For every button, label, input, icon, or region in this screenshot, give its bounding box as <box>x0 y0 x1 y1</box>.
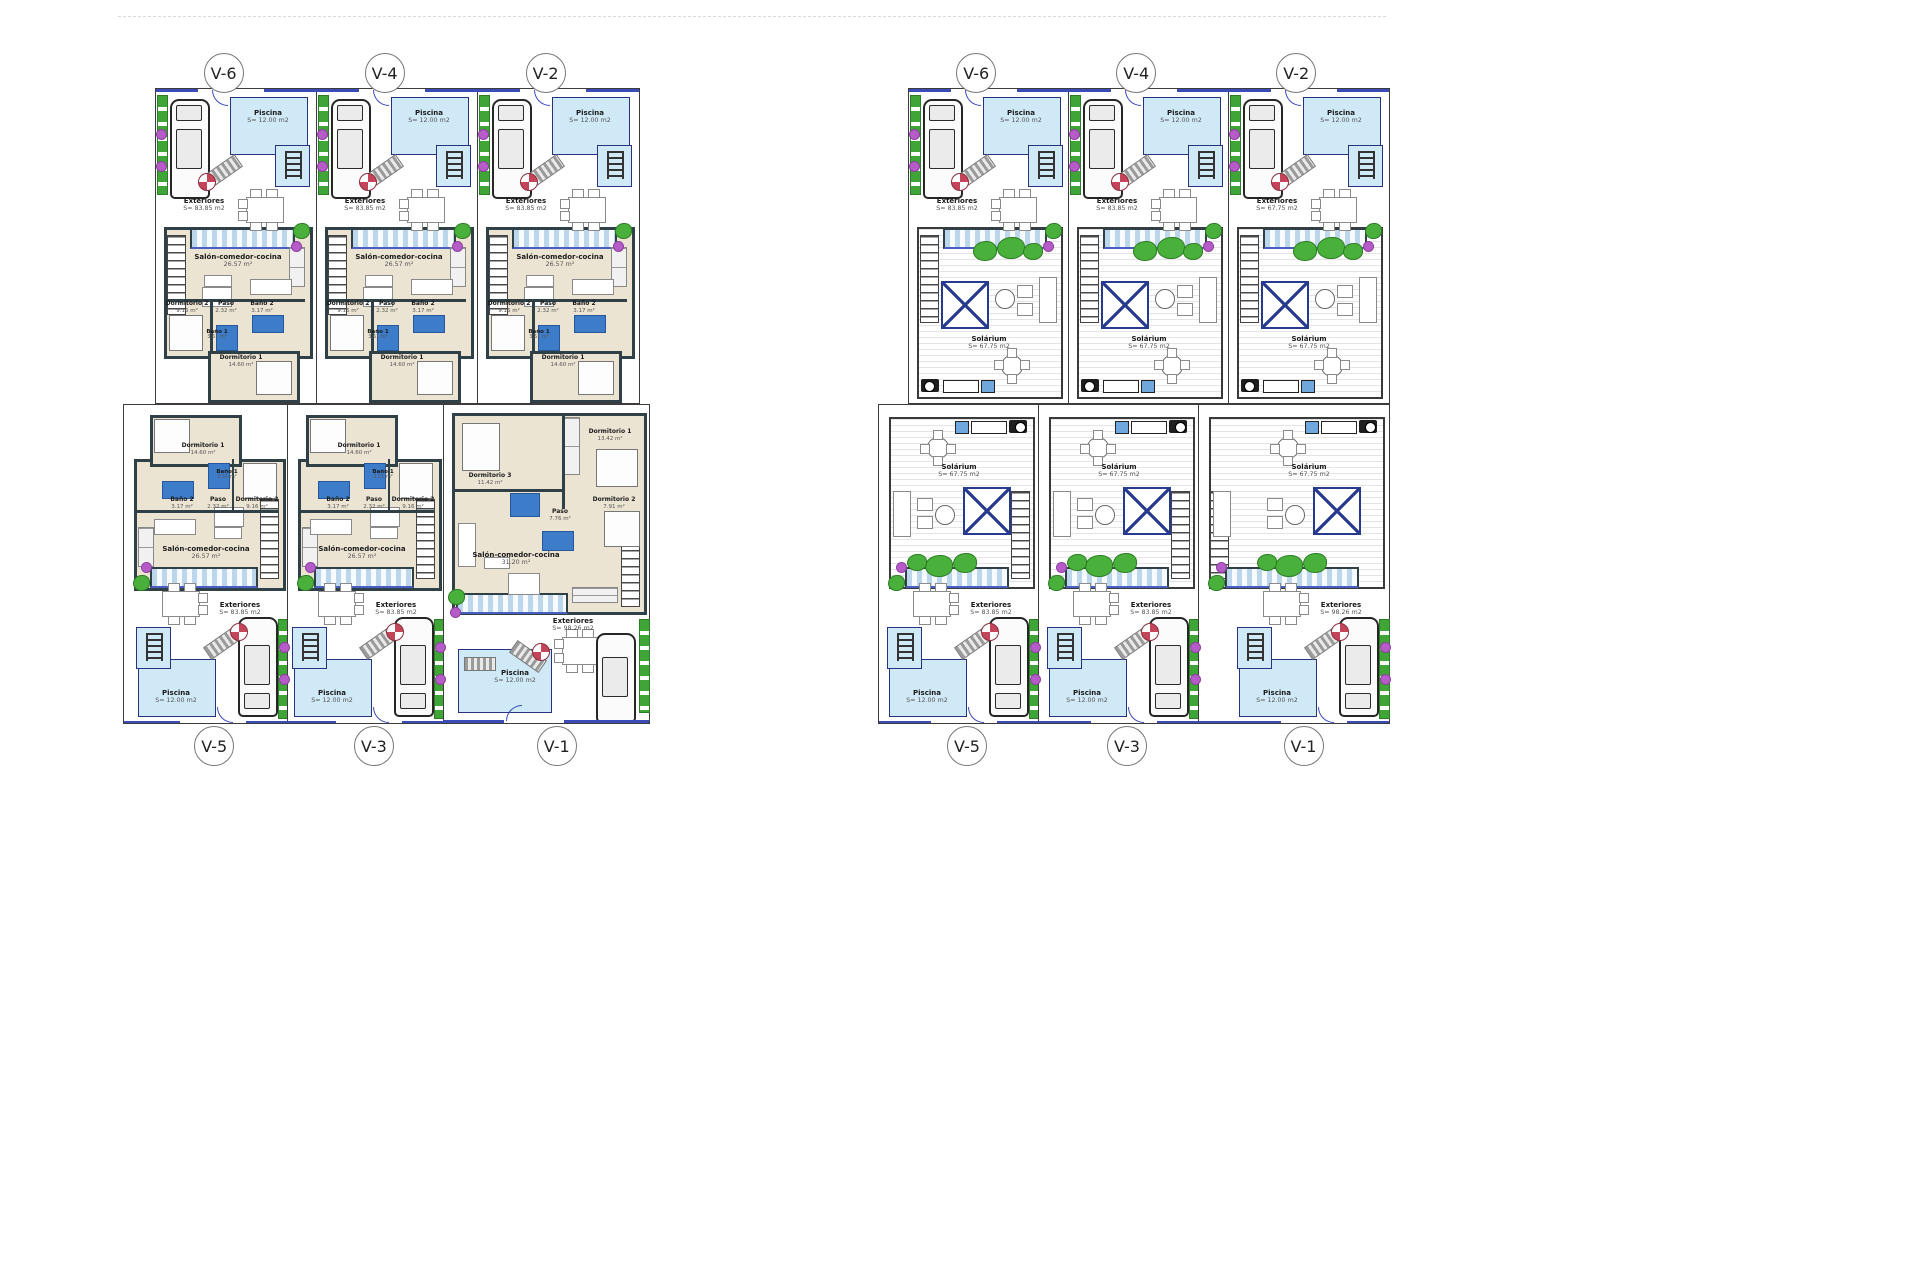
pool-label: PiscinaS= 12.00 m2 <box>1243 689 1311 704</box>
car-window <box>400 693 426 709</box>
bush <box>973 241 997 261</box>
flower <box>279 642 290 653</box>
chair <box>1177 285 1193 298</box>
flower <box>478 129 489 140</box>
car-window <box>1345 645 1371 685</box>
sofa <box>250 279 292 295</box>
entry-wall <box>1177 89 1229 92</box>
chair <box>588 189 600 198</box>
plant-strip <box>318 95 329 195</box>
dorm1-label: Dormitorio 114.60 m² <box>328 443 390 456</box>
entry-wall <box>1347 721 1389 724</box>
pool-label-name: Piscina <box>142 689 210 697</box>
bano2-label: Baño 23.17 m² <box>162 497 202 510</box>
entry-wall <box>288 721 336 724</box>
pool-label: PiscinaS= 12.00 m2 <box>1053 689 1121 704</box>
pool-label-name: Piscina <box>893 689 961 697</box>
chair <box>1179 189 1191 198</box>
dorm2-label-name: Dormitorio 2 <box>486 301 532 308</box>
dorm2-label: Dormitorio 29.16 m² <box>164 301 210 314</box>
exteriores-label-area: S= 98.26 m2 <box>1309 609 1373 616</box>
dorm2-label: Dormitorio 27.91 m² <box>586 497 642 510</box>
dorm2-label-area: 7.91 m² <box>586 504 642 510</box>
bush <box>1208 575 1225 591</box>
exteriores-label: ExterioresS= 83.85 m2 <box>1119 601 1183 616</box>
dorm3-label-area: 11.42 m² <box>458 480 522 486</box>
paso-label-name: Paso <box>534 301 562 308</box>
roof-vent-circle <box>1175 422 1186 433</box>
dorm1-label-area: 14.60 m² <box>532 362 594 368</box>
plant-strip <box>1070 95 1081 195</box>
exteriores-label-name: Exteriores <box>538 617 608 625</box>
exteriores-label: ExterioresS= 83.85 m2 <box>925 197 989 212</box>
bano1-label: Baño 13.51 m² <box>214 469 240 481</box>
chair <box>1311 199 1321 209</box>
dorm2-label: Dormitorio 29.16 m² <box>390 497 436 510</box>
parasol <box>359 173 377 191</box>
car-window <box>337 129 363 169</box>
chair <box>917 498 933 511</box>
flower <box>909 129 920 140</box>
bush <box>1257 554 1277 571</box>
coffee-table <box>365 275 393 287</box>
pool-ladder <box>897 633 914 661</box>
chair <box>1340 360 1350 370</box>
bush <box>997 237 1025 259</box>
flower <box>613 241 624 252</box>
entry-wall <box>1199 721 1281 724</box>
chair <box>184 583 196 592</box>
parasol <box>386 623 404 641</box>
pool-ladder <box>302 633 319 661</box>
roof-vent-circle <box>1084 381 1095 392</box>
car-window <box>400 645 426 685</box>
entry-wall <box>444 720 504 723</box>
car-window <box>1249 105 1275 121</box>
exteriores-label-area: S= 83.85 m2 <box>1085 205 1149 212</box>
dorm2-label: Dormitorio 29.16 m² <box>325 301 371 314</box>
sofa <box>411 279 453 295</box>
paso-label: Paso2.32 m² <box>212 301 240 314</box>
exteriores-label-area: S= 67.75 m2 <box>1245 205 1309 212</box>
paso-label: Paso2.32 m² <box>360 497 388 510</box>
pool-label-area: S= 12.00 m2 <box>484 677 546 684</box>
dining-table <box>999 197 1037 223</box>
chair <box>935 583 947 592</box>
car-window <box>244 693 270 709</box>
closet <box>564 417 580 475</box>
chair <box>340 583 352 592</box>
sheet-top-edge-line <box>118 16 1386 19</box>
car-window <box>498 129 524 169</box>
flower <box>450 607 461 618</box>
solarium-label-name: Solárium <box>1115 335 1183 343</box>
salon-label: Salón-comedor-cocina26.57 m² <box>160 545 252 560</box>
dorm2-label-area: 9.16 m² <box>486 308 532 314</box>
entry-door-arc <box>968 707 984 723</box>
sofa <box>572 279 614 295</box>
exteriores-label-name: Exteriores <box>333 197 397 205</box>
salon-label-area: 31.20 m² <box>470 559 562 566</box>
chair <box>1077 498 1093 511</box>
bano2-label: Baño 23.17 m² <box>403 301 443 314</box>
chair <box>324 616 336 625</box>
chair <box>1163 189 1175 198</box>
bush <box>907 554 927 571</box>
bed <box>399 463 433 499</box>
paso-label: Paso2.32 m² <box>373 301 401 314</box>
chair <box>919 616 931 625</box>
bathroom <box>542 531 574 551</box>
solarium-label: SoláriumS= 67.75 m2 <box>1275 463 1343 478</box>
bed <box>596 449 638 487</box>
bano2-label-area: 3.17 m² <box>564 308 604 314</box>
dorm2-label-area: 9.16 m² <box>390 504 436 510</box>
chair <box>266 189 278 198</box>
roof-vent-circle <box>1365 422 1376 433</box>
unit-v-3-sheet2: PiscinaS= 12.00 m2ExterioresS= 83.85 m2S… <box>1038 404 1200 724</box>
flower <box>156 161 167 172</box>
pergola <box>1261 281 1309 329</box>
flower <box>452 241 463 252</box>
terrace <box>190 228 295 249</box>
chair <box>1095 583 1107 592</box>
plant-strip <box>157 95 168 195</box>
bush <box>925 555 953 577</box>
unit-label-v-3: V-3 <box>1107 726 1147 766</box>
round-table <box>1285 505 1305 525</box>
bush <box>1045 223 1062 239</box>
pool-label-area: S= 12.00 m2 <box>1053 697 1121 704</box>
dorm2-label-name: Dormitorio 2 <box>325 301 371 308</box>
sofa <box>1359 277 1377 323</box>
roof-vent <box>1141 380 1155 393</box>
chair <box>354 605 364 615</box>
bed <box>462 423 500 471</box>
exteriores-label-name: Exteriores <box>959 601 1023 609</box>
exteriores-label-name: Exteriores <box>925 197 989 205</box>
parasol <box>981 623 999 641</box>
salon-label: Salón-comedor-cocina26.57 m² <box>192 253 284 268</box>
roof-vent-circle <box>924 381 935 392</box>
dining-table <box>246 197 284 223</box>
bano2-label-name: Baño 2 <box>242 301 282 308</box>
salon-label-area: 26.57 m² <box>316 553 408 560</box>
chair <box>949 605 959 615</box>
pool-label-name: Piscina <box>1147 109 1215 117</box>
flower <box>1380 642 1391 653</box>
dining-table <box>1073 591 1111 617</box>
parasol <box>230 623 248 641</box>
paso-label-area: 2.32 m² <box>534 308 562 314</box>
bush <box>1343 243 1363 260</box>
car-window <box>602 657 628 697</box>
bano1-label: Baño 13.51 m² <box>526 329 552 341</box>
chair <box>920 444 930 454</box>
chair <box>560 199 570 209</box>
exteriores-label-name: Exteriores <box>1245 197 1309 205</box>
salon-label-name: Salón-comedor-cocina <box>514 253 606 261</box>
dorm1-label: Dormitorio 113.42 m² <box>580 429 640 442</box>
exteriores-label: ExterioresS= 83.85 m2 <box>333 197 397 212</box>
salon-label-name: Salón-comedor-cocina <box>192 253 284 261</box>
bush <box>1293 241 1317 261</box>
chair <box>554 639 564 649</box>
pool-label: PiscinaS= 12.00 m2 <box>484 669 546 684</box>
dorm1-label-name: Dormitorio 1 <box>328 443 390 450</box>
entry-wall <box>425 89 478 92</box>
flower <box>435 642 446 653</box>
car-window <box>929 105 955 121</box>
chair <box>554 653 564 663</box>
pool-label: PiscinaS= 12.00 m2 <box>556 109 624 124</box>
round-table <box>935 505 955 525</box>
unit-label-v-3: V-3 <box>354 726 394 766</box>
kitchen-cabinets <box>572 587 618 603</box>
exteriores-label-area: S= 83.85 m2 <box>959 609 1023 616</box>
exteriores-label-area: S= 83.85 m2 <box>172 205 236 212</box>
parasol <box>1271 173 1289 191</box>
chair <box>991 199 1001 209</box>
bano2-label-area: 3.17 m² <box>318 504 358 510</box>
pool-label: PiscinaS= 12.00 m2 <box>1147 109 1215 124</box>
flower <box>909 161 920 172</box>
flower <box>156 129 167 140</box>
chair <box>1337 303 1353 316</box>
roof-vent <box>955 421 969 434</box>
chair <box>917 516 933 529</box>
bano2-label: Baño 23.17 m² <box>242 301 282 314</box>
flower <box>1203 241 1214 252</box>
roof-vent-circle <box>1244 381 1255 392</box>
chair <box>1079 616 1091 625</box>
exteriores-label: ExterioresS= 98.26 m2 <box>1309 601 1373 616</box>
exteriores-label-name: Exteriores <box>1309 601 1373 609</box>
bano2-label-name: Baño 2 <box>403 301 443 308</box>
coffee-table <box>214 527 242 539</box>
entry-wall <box>1337 89 1389 92</box>
coffee-table <box>204 275 232 287</box>
flower <box>1363 241 1374 252</box>
chair <box>1077 516 1093 529</box>
exteriores-label: ExterioresS= 83.85 m2 <box>364 601 428 616</box>
chair <box>266 222 278 231</box>
dorm2-label-name: Dormitorio 2 <box>234 497 280 504</box>
bano1-label: Baño 13.51 m² <box>365 329 391 341</box>
bush <box>448 589 465 605</box>
sofa <box>1053 491 1071 537</box>
coffee-table <box>526 275 554 287</box>
car-window <box>1249 129 1275 169</box>
unit-label-v-6: V-6 <box>204 53 244 93</box>
flower <box>1380 674 1391 685</box>
chair <box>1106 444 1116 454</box>
exteriores-label: ExterioresS= 83.85 m2 <box>494 197 558 212</box>
chair <box>1151 199 1161 209</box>
bano2-label-area: 3.17 m² <box>403 308 443 314</box>
salon-label-name: Salón-comedor-cocina <box>353 253 445 261</box>
stairs <box>1240 235 1259 323</box>
pool-label-area: S= 12.00 m2 <box>556 117 624 124</box>
roof-equipment <box>1103 380 1139 393</box>
chair <box>1003 189 1015 198</box>
chair <box>582 664 594 673</box>
unit-label-v-5: V-5 <box>947 726 987 766</box>
dorm3-label: Dormitorio 311.42 m² <box>458 473 522 486</box>
entry-wall <box>264 89 317 92</box>
pool-label-name: Piscina <box>234 109 302 117</box>
round-table <box>1095 505 1115 525</box>
unit-v-6-sheet2: PiscinaS= 12.00 m2ExterioresS= 83.85 m2S… <box>908 88 1070 404</box>
sofa <box>893 491 911 537</box>
entry-wall <box>879 721 931 724</box>
chair <box>427 189 439 198</box>
paso-label-name: Paso <box>212 301 240 308</box>
bano2-label-area: 3.17 m² <box>242 308 282 314</box>
salon-label: Salón-comedor-cocina26.57 m² <box>353 253 445 268</box>
bano2-label: Baño 23.17 m² <box>564 301 604 314</box>
bano1-label-area: 3.51 m² <box>526 335 552 341</box>
chair <box>1003 222 1015 231</box>
dining-table <box>1159 197 1197 223</box>
pool-label-name: Piscina <box>1307 109 1375 117</box>
chair <box>1269 616 1281 625</box>
kitchen-cabinets <box>138 527 154 567</box>
pool-ladder <box>1198 151 1215 179</box>
solarium-label-area: S= 67.75 m2 <box>1275 471 1343 478</box>
entry-door-arc <box>1128 707 1144 723</box>
plant-strip <box>639 619 650 713</box>
chair <box>1180 360 1190 370</box>
chair <box>566 664 578 673</box>
chair <box>427 222 439 231</box>
dorm1-label: Dormitorio 114.60 m² <box>172 443 234 456</box>
chair <box>1269 583 1281 592</box>
chair <box>324 583 336 592</box>
chair <box>1327 374 1337 384</box>
unit-label-v-5: V-5 <box>194 726 234 766</box>
exteriores-label-name: Exteriores <box>172 197 236 205</box>
coffee-table <box>370 527 398 539</box>
entry-wall <box>1039 721 1091 724</box>
roof-vent <box>1115 421 1129 434</box>
exteriores-label: ExterioresS= 67.75 m2 <box>1245 197 1309 212</box>
chair <box>1311 211 1321 221</box>
roof-equipment <box>943 380 979 393</box>
roof-equipment <box>1263 380 1299 393</box>
flower <box>1069 161 1080 172</box>
solarium-label: SoláriumS= 67.75 m2 <box>1115 335 1183 350</box>
dining-table <box>162 591 200 617</box>
salon-label-name: Salón-comedor-cocina <box>316 545 408 553</box>
flower <box>1030 642 1041 653</box>
chair <box>1285 616 1297 625</box>
flower <box>478 161 489 172</box>
paso-label-name: Paso <box>540 509 580 516</box>
chair <box>1007 374 1017 384</box>
chair <box>198 605 208 615</box>
paso-label-area: 2.32 m² <box>212 308 240 314</box>
flower <box>1229 161 1240 172</box>
bano2-label-name: Baño 2 <box>318 497 358 504</box>
car-window <box>1089 105 1115 121</box>
flower <box>279 674 290 685</box>
chair <box>1270 444 1280 454</box>
car-window <box>929 129 955 169</box>
chair <box>1019 222 1031 231</box>
pool-label-area: S= 12.00 m2 <box>142 697 210 704</box>
bush <box>1048 575 1065 591</box>
chair <box>1299 593 1309 603</box>
bush <box>1275 555 1303 577</box>
dorm1-label: Dormitorio 114.60 m² <box>210 355 272 368</box>
unit-label-v-4: V-4 <box>365 53 405 93</box>
salon-label-area: 26.57 m² <box>192 261 284 268</box>
pool-label-name: Piscina <box>1053 689 1121 697</box>
solarium-label-name: Solárium <box>925 463 993 471</box>
entry-wall <box>317 89 359 92</box>
pool-label-name: Piscina <box>1243 689 1311 697</box>
dining-table <box>1319 197 1357 223</box>
bush <box>1023 243 1043 260</box>
solarium-label: SoláriumS= 67.75 m2 <box>955 335 1023 350</box>
exteriores-label-name: Exteriores <box>1085 197 1149 205</box>
solarium-label-name: Solárium <box>1275 463 1343 471</box>
bush <box>1303 553 1327 573</box>
interior-wall <box>562 413 565 509</box>
flower <box>305 562 316 573</box>
paso-label-area: 7.76 m² <box>540 516 580 522</box>
dorm1-label-name: Dormitorio 1 <box>532 355 594 362</box>
sofa <box>1039 277 1057 323</box>
solarium-label-area: S= 67.75 m2 <box>955 343 1023 350</box>
interior-wall <box>300 510 434 513</box>
exteriores-label: ExterioresS= 98.26 m2 <box>538 617 608 632</box>
solarium-label: SoláriumS= 67.75 m2 <box>1275 335 1343 350</box>
unit-v-3-sheet1: PiscinaS= 12.00 m2ExterioresS= 83.85 m2S… <box>287 404 445 724</box>
pool-ladder <box>1358 151 1375 179</box>
pergola <box>1101 281 1149 329</box>
unit-label-v-2: V-2 <box>1276 53 1316 93</box>
chair <box>250 189 262 198</box>
bed <box>604 511 640 547</box>
dorm2-label-name: Dormitorio 2 <box>390 497 436 504</box>
salon-label: Salón-comedor-cocina31.20 m² <box>470 551 562 566</box>
bano1-label-area: 3.51 m² <box>204 335 230 341</box>
flower <box>435 674 446 685</box>
exteriores-label-area: S= 83.85 m2 <box>208 609 272 616</box>
dorm1-label: Dormitorio 114.60 m² <box>532 355 594 368</box>
paso-label-name: Paso <box>204 497 232 504</box>
pool-label: PiscinaS= 12.00 m2 <box>234 109 302 124</box>
car-window <box>1089 129 1115 169</box>
car-window <box>337 105 363 121</box>
exteriores-label-area: S= 83.85 m2 <box>364 609 428 616</box>
chair <box>168 583 180 592</box>
plant-strip <box>1379 619 1390 719</box>
chair <box>946 444 956 454</box>
chair <box>588 222 600 231</box>
flower <box>317 161 328 172</box>
chair <box>933 430 943 440</box>
table <box>508 573 540 595</box>
pergola <box>963 487 1011 535</box>
paso-label: Paso7.76 m² <box>540 509 580 522</box>
bed <box>169 315 203 351</box>
chair <box>1093 430 1103 440</box>
roof-vent <box>1305 421 1319 434</box>
chair <box>1109 605 1119 615</box>
